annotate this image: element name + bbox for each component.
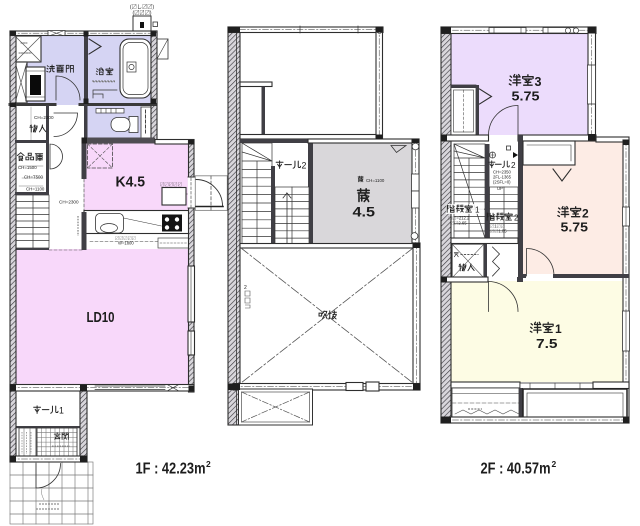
svg-text:UP: UP [497, 186, 503, 191]
svg-text:CH=T500: CH=T500 [24, 175, 43, 180]
svg-text:〼〼〼〼〼: 〼〼〼〼〼 [160, 182, 182, 187]
svg-text:3: 3 [535, 75, 542, 89]
svg-text:LD10: LD10 [87, 309, 115, 326]
svg-text:〼〼2.65: 〼〼2.65 [450, 221, 467, 226]
svg-text:2: 2 [511, 161, 516, 170]
svg-text:2: 2 [582, 207, 589, 221]
svg-text:2: 2 [552, 459, 557, 469]
svg-text:5.75: 5.75 [561, 220, 589, 235]
svg-text:1: 1 [475, 206, 480, 215]
svg-text:5.75: 5.75 [512, 88, 540, 103]
svg-text:W=1800: W=1800 [118, 241, 134, 246]
svg-text:2: 2 [514, 214, 519, 223]
svg-text:〼〼1.05: 〼〼1.05 [490, 229, 507, 234]
svg-text:2: 2 [206, 459, 211, 469]
svg-text:(〼し〼〼): (〼し〼〼) [130, 4, 154, 11]
svg-text:1: 1 [59, 406, 64, 416]
svg-text:2: 2 [244, 285, 247, 291]
svg-text:CH=1100: CH=1100 [366, 178, 385, 183]
svg-text:1F : 42.23m: 1F : 42.23m [136, 461, 206, 478]
svg-text:7.5: 7.5 [536, 336, 558, 351]
svg-text:(〼〼〼): (〼〼〼) [132, 10, 151, 17]
svg-text:CH=1100: CH=1100 [26, 187, 45, 192]
svg-text:1: 1 [555, 322, 562, 336]
svg-text:(2SFL=0): (2SFL=0) [493, 180, 511, 185]
svg-text:2: 2 [302, 161, 307, 171]
svg-text:CH=2300: CH=2300 [34, 115, 54, 120]
svg-text:K4.5: K4.5 [116, 174, 146, 190]
svg-text:4.5: 4.5 [353, 205, 376, 220]
svg-text:CH=2300: CH=2300 [59, 200, 79, 205]
svg-text:2F : 40.57m: 2F : 40.57m [481, 461, 551, 478]
svg-text:CH=1500: CH=1500 [18, 165, 37, 170]
